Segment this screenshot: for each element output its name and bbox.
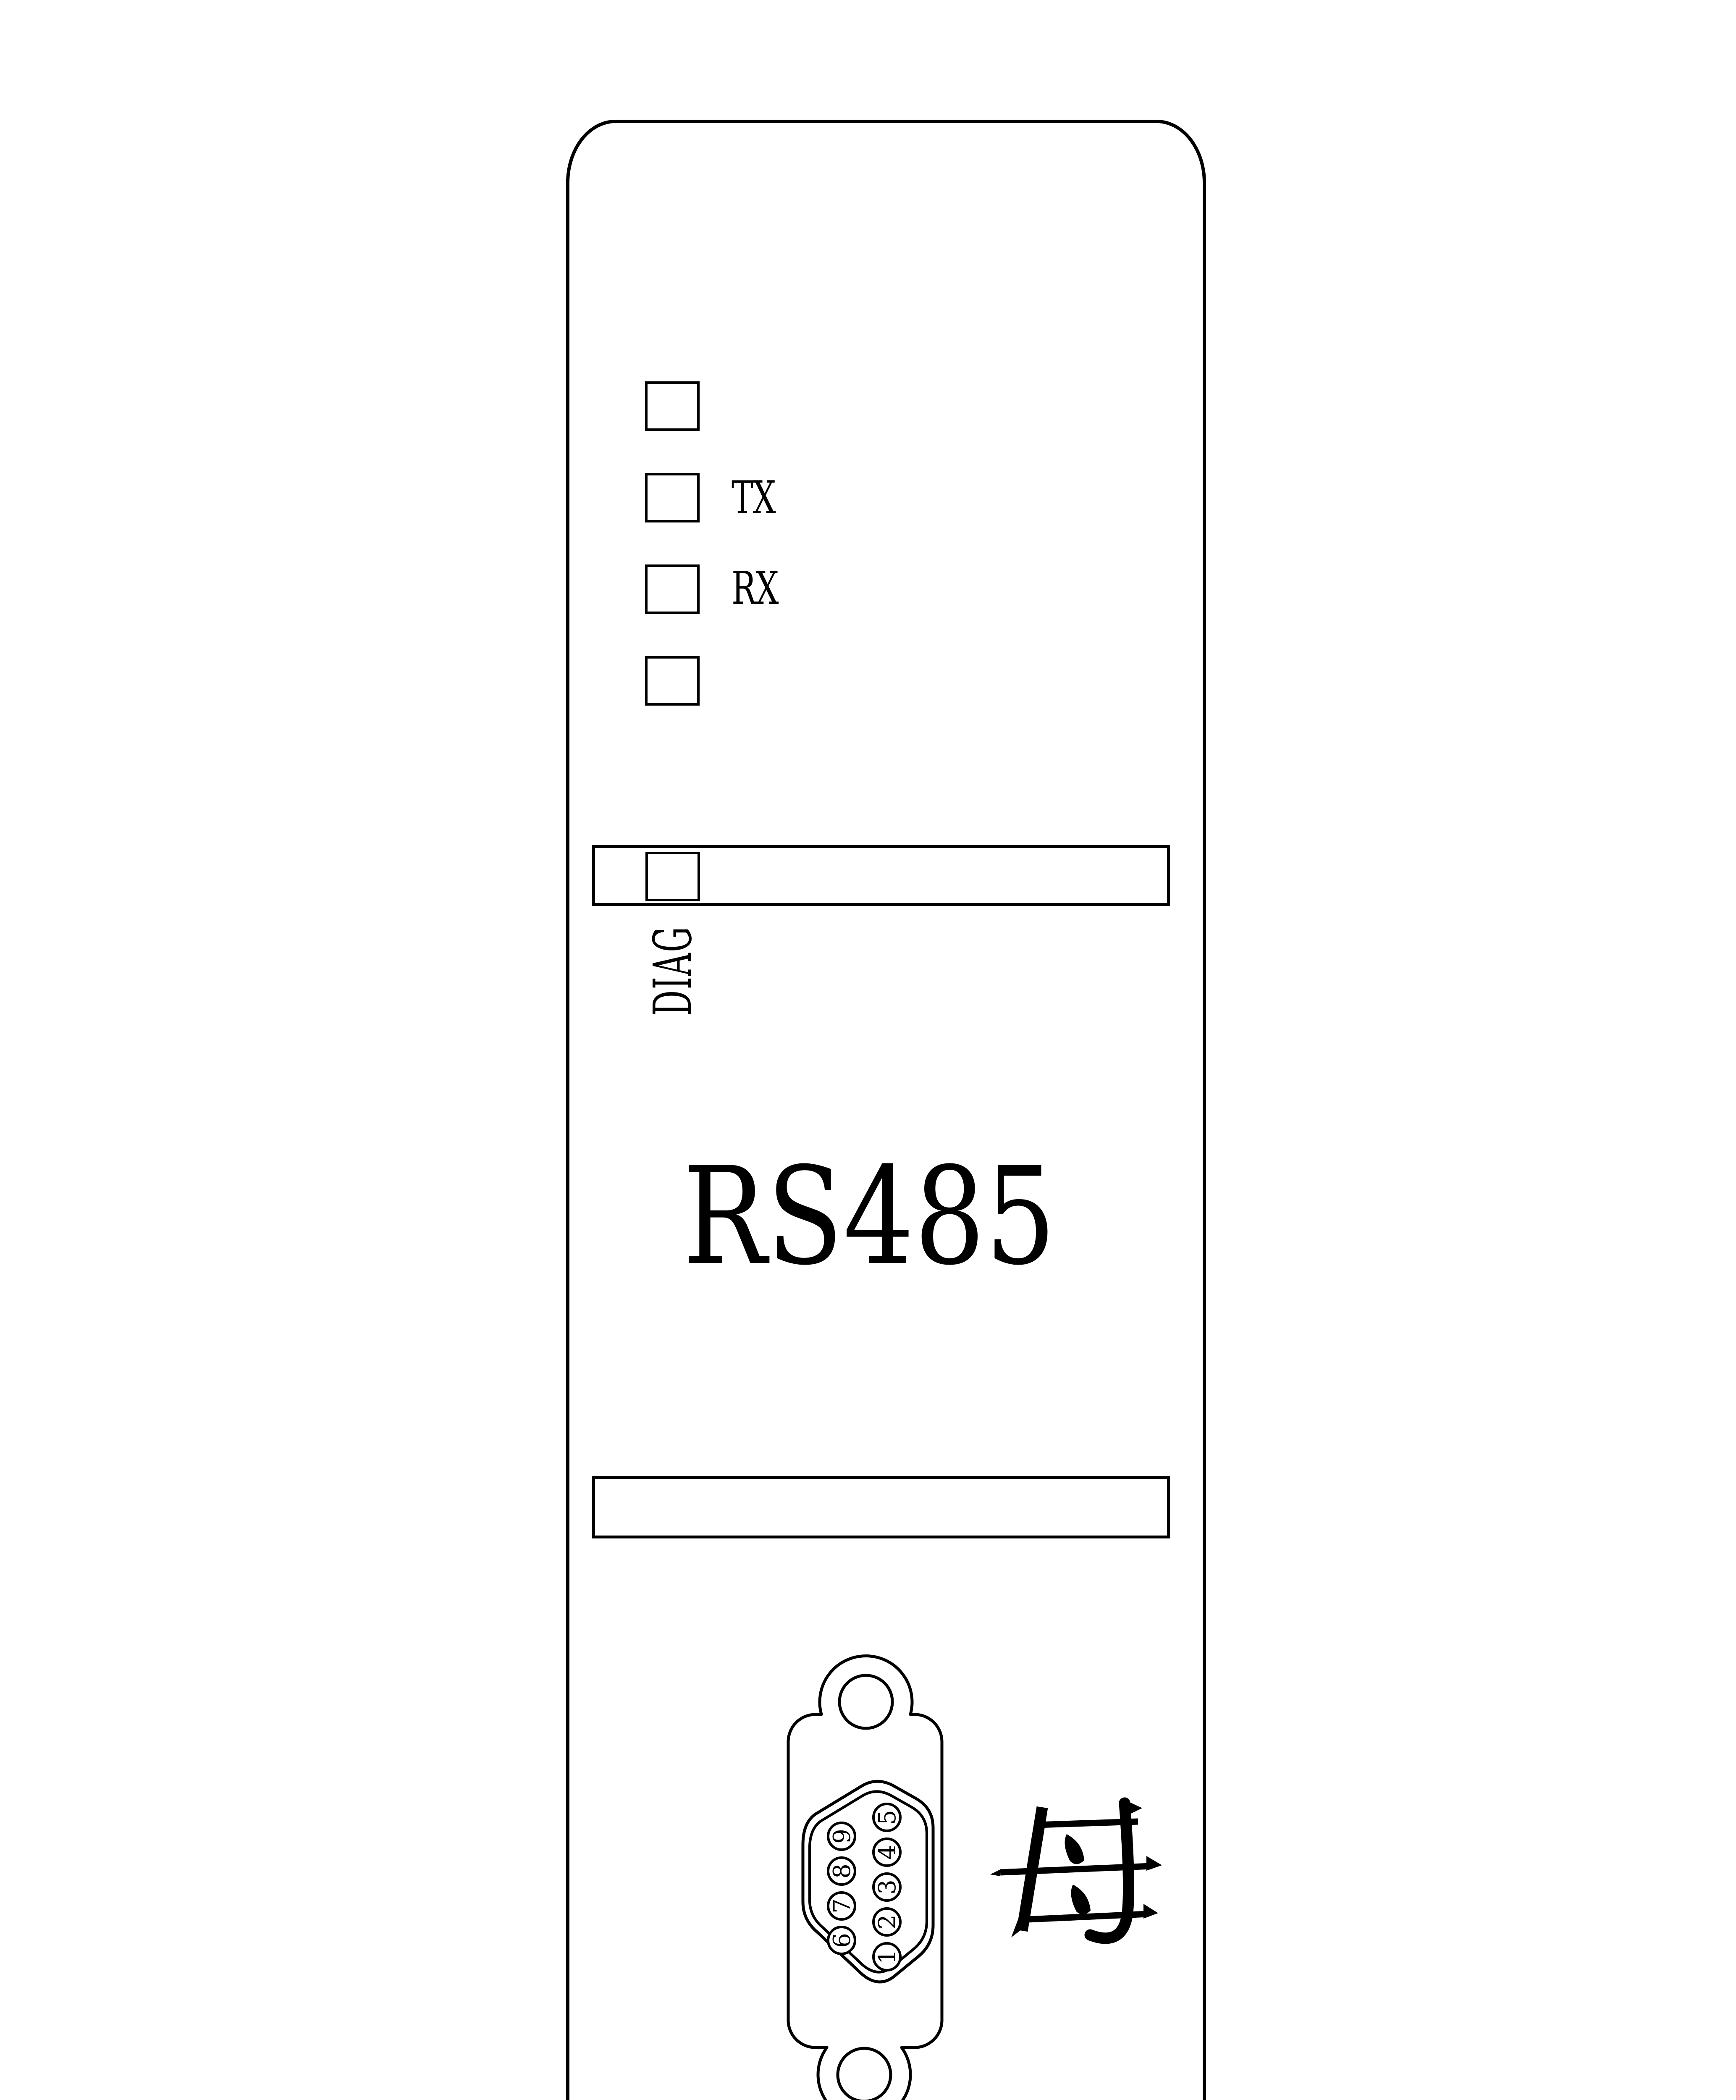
pin-3-number: 3	[874, 1879, 901, 1895]
tx-label-text: TX	[732, 472, 775, 524]
lower-strip-bar	[592, 1476, 1170, 1538]
pin-6-number: 6	[829, 1933, 856, 1948]
glyph-lowbar-right-serif	[1143, 1904, 1158, 1919]
pin-4-number: 4	[874, 1845, 901, 1860]
db9-bottom-screw-hole	[838, 2048, 891, 2100]
tx-label: TX	[732, 472, 792, 523]
pin-9-number: 9	[829, 1829, 856, 1844]
glyph-lower-dot	[1071, 1885, 1091, 1915]
pin-1-number: 1	[874, 1949, 901, 1964]
diag-label: DIAG	[646, 866, 700, 1016]
female-label-text: 母	[0, 0, 0, 0]
female-label-glyph	[987, 1795, 1159, 1959]
rx-label-text: RX	[732, 562, 778, 615]
pin-2-number: 2	[874, 1914, 901, 1929]
pin-8-number: 8	[829, 1864, 856, 1879]
pin-7-number: 7	[829, 1898, 856, 1914]
interface-type-label: RS485	[683, 1150, 1056, 1284]
diag-label-text: DIAG	[646, 926, 700, 1016]
glyph-upper-dot	[1065, 1834, 1085, 1864]
led-indicator-1	[645, 381, 700, 431]
rx-label: RX	[732, 563, 796, 614]
led-indicator-4	[645, 656, 700, 706]
pin-5-number: 5	[874, 1810, 901, 1825]
led-indicator-rx	[645, 564, 700, 614]
db9-connector: 5 4 3 2 1 9 8 7 6	[764, 1638, 974, 2100]
db9-top-screw-hole	[839, 1675, 892, 1728]
glyph-midbar-left-taper	[990, 1869, 1000, 1876]
led-indicator-tx	[645, 473, 700, 522]
